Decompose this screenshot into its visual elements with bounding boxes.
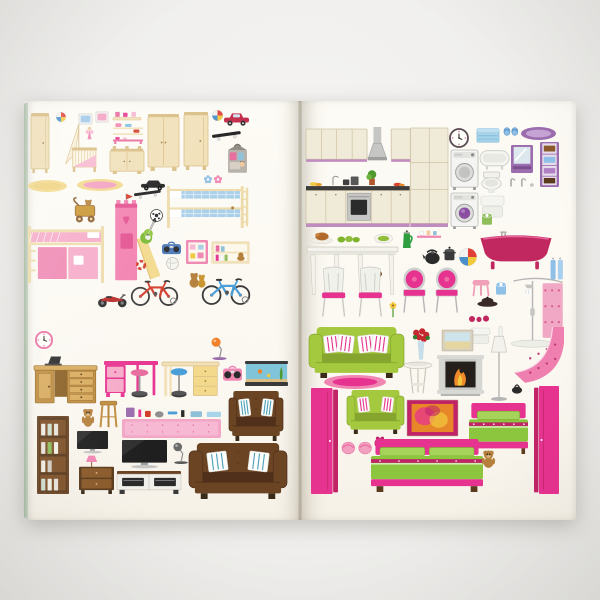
wall-shelf-books (212, 242, 249, 263)
cucumbers (337, 235, 361, 244)
kitchen-set (306, 127, 448, 228)
changing-table (110, 146, 144, 174)
dresser-pink (28, 194, 69, 223)
toilet-paper-green (482, 213, 492, 226)
noticeboard-pink (186, 240, 208, 264)
nightstand-with-lamp (79, 455, 114, 494)
boombox-blue (162, 242, 181, 256)
wall-clock (449, 128, 469, 148)
kettle-black (422, 247, 442, 265)
doll-carry-house (227, 144, 248, 174)
baroque-chairs-pink (402, 267, 461, 314)
beach-ball-small (212, 110, 223, 121)
volleyball (166, 257, 179, 270)
nightstand-pink-left (342, 462, 366, 494)
picture-frame-blue (79, 114, 92, 124)
aquarium (245, 361, 288, 386)
wardrobe-pink-left (311, 388, 338, 494)
tv-large (122, 440, 167, 469)
tv-stand (117, 471, 181, 494)
electric-guitar (139, 219, 159, 246)
sofa-brown (189, 443, 287, 499)
bicycle-red (131, 274, 178, 306)
washing-machine (451, 150, 478, 190)
teddy-bear-small (81, 408, 95, 427)
bathroom-cabinet-small (540, 191, 559, 221)
bunk-bed-blue (167, 186, 249, 228)
bathtub-white (480, 149, 509, 170)
staircase-pink (512, 327, 564, 384)
pot-black (443, 245, 456, 262)
vanity-purple (506, 189, 534, 219)
flower-yellow (388, 302, 398, 318)
storage-box-blue (477, 127, 499, 143)
picture-beach (442, 330, 473, 351)
armchair-brown (229, 391, 283, 441)
armchair-green (347, 390, 404, 434)
handbag-black (511, 384, 523, 394)
toy-car-red (224, 112, 249, 126)
cosmetics-set (126, 405, 221, 418)
rug-oval-yellow (28, 180, 67, 192)
hanging-doll (85, 126, 94, 140)
tv-small (77, 431, 108, 454)
wardrobe-wide-cream (184, 112, 208, 170)
jug-green (401, 230, 414, 249)
beach-ball-large (459, 248, 477, 266)
desk-lamp-orange (210, 336, 229, 360)
bar-stool-blue (170, 368, 188, 398)
bath-rug-purple (521, 127, 556, 140)
washing-machine-2 (451, 193, 478, 229)
desk-lamp-gray (172, 441, 190, 464)
faucet-set (507, 177, 534, 187)
wall-clock-pink (35, 331, 53, 349)
picture-abstract (407, 400, 458, 436)
desk-wooden (34, 356, 97, 407)
toilet-white (480, 172, 503, 193)
boombox-pink (223, 366, 242, 383)
book-gutter (298, 101, 302, 520)
nightstand-pink-right (499, 460, 523, 493)
picture-frame-pink (96, 112, 108, 122)
bar-stool-pink (130, 369, 149, 398)
shelf-pink-cups (417, 230, 441, 239)
motorbike-red (97, 290, 127, 308)
bicycle-blue (202, 272, 250, 305)
baby-walker-teddy (71, 196, 99, 223)
berries-red (469, 315, 489, 323)
rug-pink (122, 419, 221, 438)
bathtub-pink-clawfoot (479, 231, 553, 271)
side-table-round (404, 362, 432, 395)
slippers-blue (504, 127, 518, 136)
dining-chairs-white (318, 267, 386, 318)
fireplace (437, 353, 484, 396)
toilet-paper-blue (496, 282, 506, 296)
photo-of-open-sticker-book (0, 0, 600, 600)
salad-plate (374, 233, 393, 244)
sofa-green (309, 327, 404, 378)
rug-oval-pink-yellow (77, 179, 123, 191)
loft-bed-pink (28, 226, 104, 283)
roast-platter (311, 231, 333, 244)
wall-shelf-toy-cars (113, 122, 143, 135)
skateboard (212, 129, 241, 142)
bed-double-pink (371, 439, 483, 492)
bookshelf-brown (37, 416, 69, 494)
shelf-pink-toys (113, 111, 141, 120)
towel-stack (471, 328, 490, 344)
shelf-pink-rack (113, 137, 143, 144)
mirror-cabinet-purple (511, 145, 533, 173)
slippers-pink (342, 441, 372, 455)
sticker-book (24, 101, 576, 520)
stool-wooden (99, 400, 118, 428)
floor-lamp (489, 335, 509, 401)
cabinet-light-blue (61, 330, 103, 358)
toy-ball-blue (56, 112, 66, 122)
rug-oval-pink (324, 375, 386, 389)
wardrobe-tall-cream (31, 113, 49, 173)
teddy-bear (481, 450, 496, 468)
wardrobe-pink-right (534, 386, 559, 494)
wardrobe-double-cream (148, 114, 179, 171)
vase-with-roses (409, 327, 433, 361)
red-ring (136, 260, 146, 270)
bathroom-cabinet-tall (540, 142, 559, 187)
beret-black (477, 296, 498, 307)
stool-pink (471, 280, 491, 297)
flower-stickers (203, 175, 223, 184)
